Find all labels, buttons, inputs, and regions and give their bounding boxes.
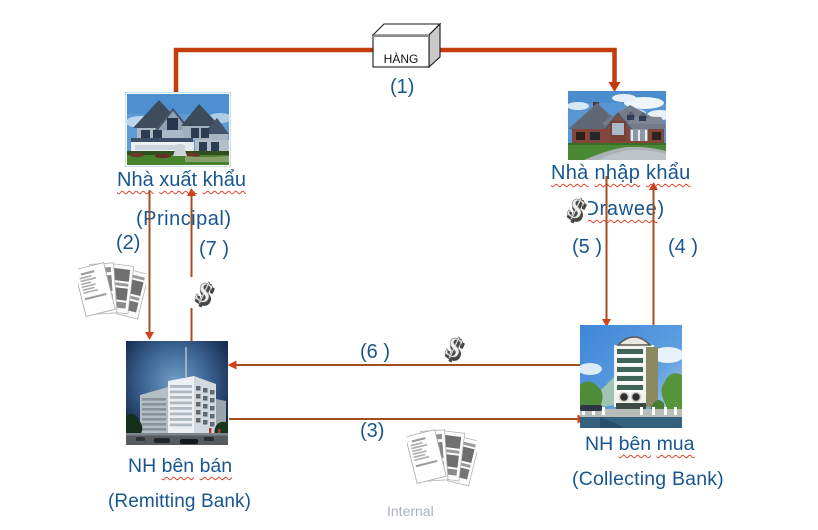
svg-text:HÀNG: HÀNG <box>384 51 419 66</box>
